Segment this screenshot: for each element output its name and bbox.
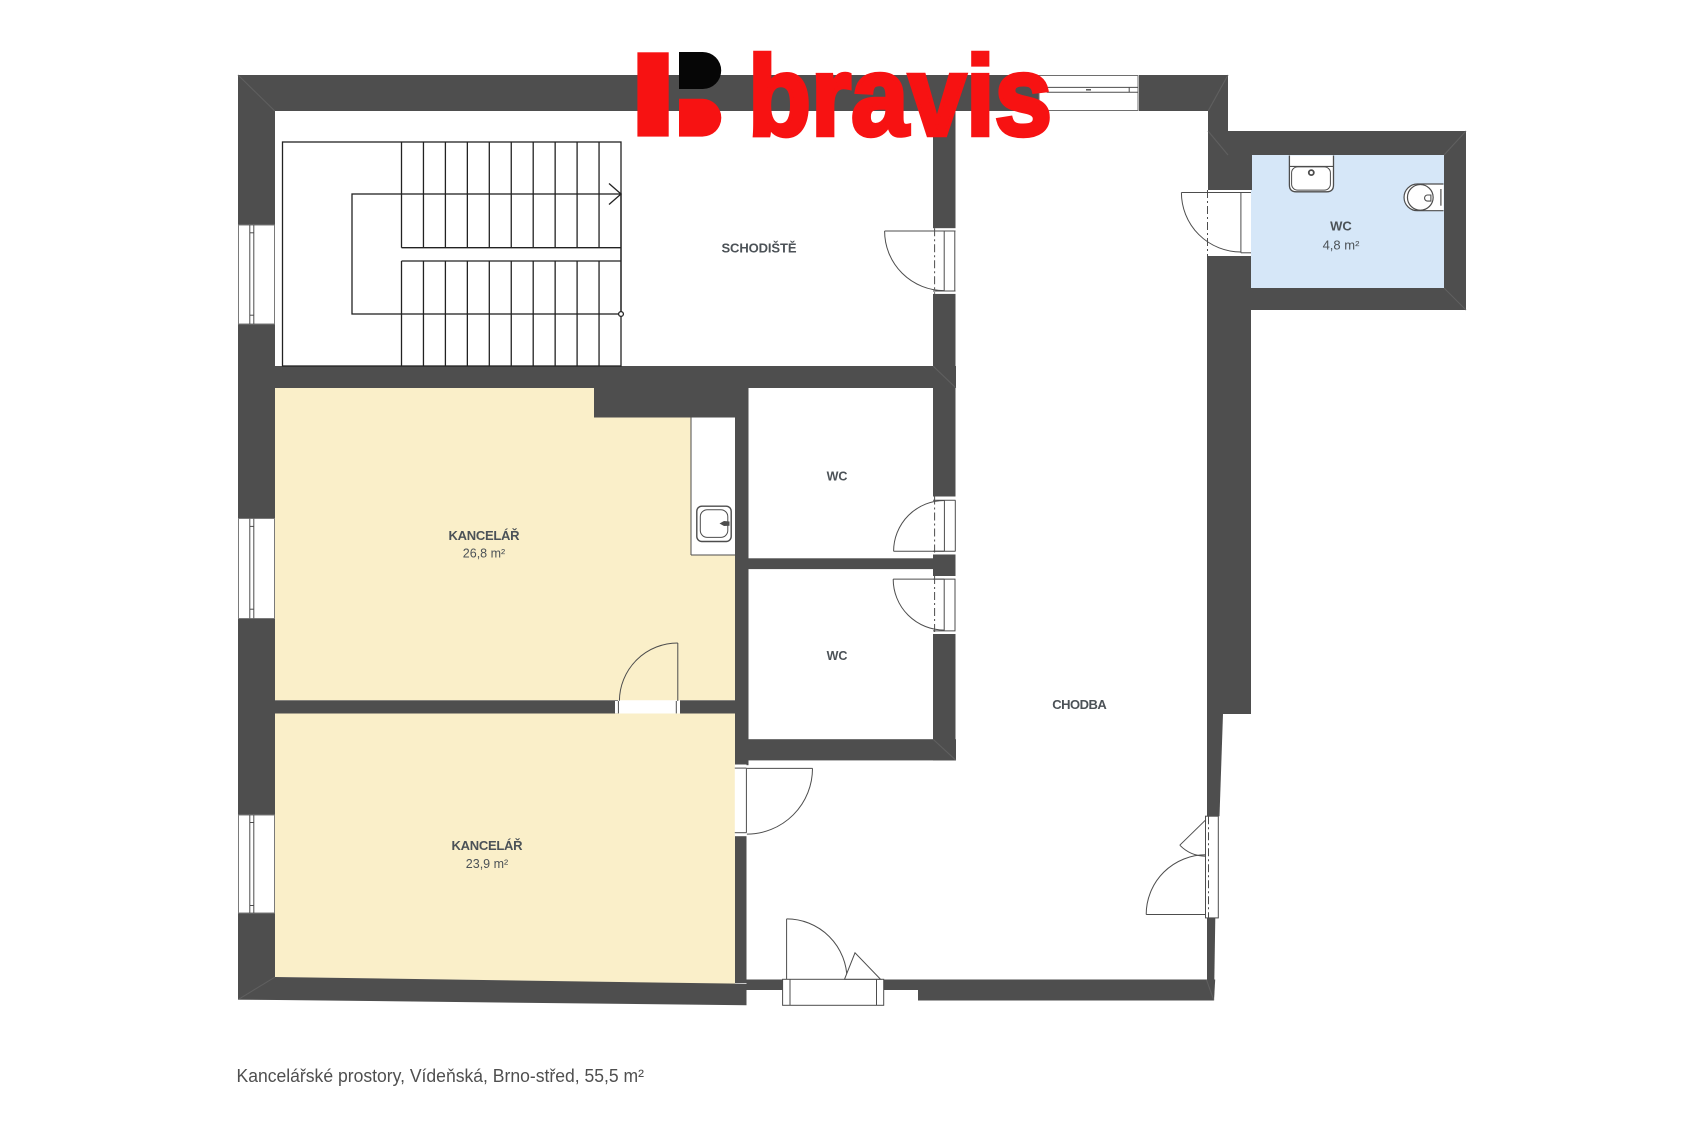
svg-text:Kancelářské prostory, Vídeňská: Kancelářské prostory, Vídeňská, Brno-stř… <box>237 1066 645 1086</box>
svg-text:4,8 m²: 4,8 m² <box>1323 238 1361 253</box>
svg-text:WC: WC <box>1330 219 1352 234</box>
svg-text:SCHODIŠTĚ: SCHODIŠTĚ <box>722 241 797 256</box>
svg-text:CHODBA: CHODBA <box>1052 697 1107 712</box>
svg-text:WC: WC <box>827 470 848 484</box>
svg-text:23,9 m²: 23,9 m² <box>466 857 508 871</box>
svg-text:bravis: bravis <box>748 33 1052 159</box>
svg-text:KANCELÁŘ: KANCELÁŘ <box>452 838 524 853</box>
svg-text:KANCELÁŘ: KANCELÁŘ <box>449 528 521 543</box>
svg-text:WC: WC <box>827 649 848 663</box>
svg-text:26,8 m²: 26,8 m² <box>463 547 505 561</box>
